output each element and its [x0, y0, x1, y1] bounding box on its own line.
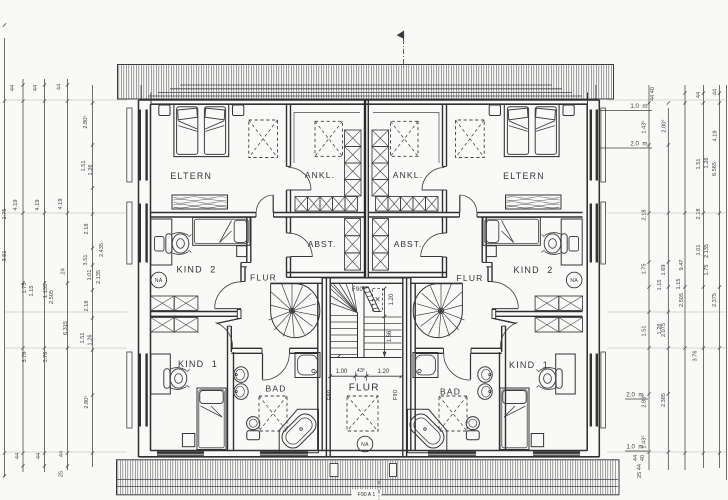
svg-text:1.26: 1.26 [704, 158, 710, 169]
svg-text:ELTERN: ELTERN [170, 171, 212, 181]
svg-text:3.51: 3.51 [83, 255, 89, 266]
svg-text:BAD: BAD [265, 384, 286, 394]
svg-text:1.51: 1.51 [696, 159, 702, 170]
svg-text:2.375: 2.375 [712, 293, 718, 307]
svg-text:44: 44 [696, 92, 702, 98]
svg-text:44: 44 [10, 85, 16, 91]
svg-text:25 44: 25 44 [637, 464, 643, 478]
svg-text:44: 44 [633, 455, 639, 461]
svg-text:4.19: 4.19 [35, 200, 41, 211]
svg-text:2.505: 2.505 [49, 290, 55, 304]
svg-text:2.075: 2.075 [661, 323, 667, 337]
svg-text:2.18: 2.18 [696, 209, 702, 220]
svg-text:2.80⁵: 2.80⁵ [83, 395, 90, 408]
svg-text:2.135: 2.135 [704, 244, 710, 258]
svg-text:F90 A 1: F90 A 1 [358, 492, 376, 498]
svg-text:2.0 m: 2.0 m [630, 141, 647, 148]
svg-text:FLUR: FLUR [250, 272, 277, 282]
svg-text:2.385: 2.385 [661, 393, 667, 407]
svg-text:BAD: BAD [440, 387, 461, 397]
svg-text:3.76: 3.76 [22, 352, 28, 363]
svg-text:6.315: 6.315 [63, 321, 69, 335]
svg-text:1.26: 1.26 [88, 335, 94, 346]
svg-text:43⁵: 43⁵ [357, 367, 365, 374]
svg-text:2.0 m: 2.0 m [626, 392, 643, 399]
svg-text:1.15: 1.15 [657, 280, 663, 291]
svg-text:1.0 m: 1.0 m [630, 103, 647, 110]
svg-text:1.56: 1.56 [387, 330, 393, 342]
svg-text:3.51: 3.51 [2, 251, 8, 262]
svg-text:KIND 2: KIND 2 [177, 265, 217, 275]
svg-text:FLUR: FLUR [349, 383, 380, 394]
svg-text:1.20: 1.20 [389, 293, 395, 305]
svg-text:ABST.: ABST. [394, 239, 423, 249]
svg-text:1.00: 1.00 [336, 369, 348, 375]
svg-text:1.75: 1.75 [2, 209, 8, 220]
svg-text:KIND 1: KIND 1 [509, 360, 549, 370]
svg-text:44 40: 44 40 [650, 87, 656, 101]
svg-text:1.75: 1.75 [704, 265, 710, 276]
svg-text:KIND 2: KIND 2 [514, 265, 554, 275]
svg-text:1.69: 1.69 [661, 265, 667, 276]
svg-text:25: 25 [59, 471, 65, 477]
svg-text:1.75: 1.75 [642, 264, 648, 275]
svg-text:44: 44 [33, 85, 39, 91]
svg-text:ANKL.: ANKL. [305, 170, 336, 180]
svg-text:2.18: 2.18 [642, 210, 648, 221]
svg-text:1.01: 1.01 [696, 245, 702, 256]
svg-text:3.76: 3.76 [693, 351, 699, 362]
svg-text:NA: NA [155, 278, 163, 284]
svg-text:1.43⁵: 1.43⁵ [641, 120, 648, 133]
svg-text:9.47: 9.47 [679, 260, 685, 271]
svg-text:1.15: 1.15 [29, 286, 35, 297]
svg-text:3.76: 3.76 [43, 352, 49, 363]
svg-text:1.51: 1.51 [81, 161, 87, 172]
svg-text:ELTERN: ELTERN [503, 171, 545, 181]
svg-text:NA: NA [570, 278, 578, 284]
svg-text:1.15: 1.15 [676, 279, 682, 290]
svg-text:1.0 m: 1.0 m [626, 444, 643, 451]
svg-text:1.01: 1.01 [87, 270, 93, 281]
svg-text:2.435: 2.435 [99, 243, 105, 257]
svg-text:1.51: 1.51 [80, 333, 86, 344]
svg-text:ANKL.: ANKL. [393, 170, 424, 180]
svg-text:.24: .24 [61, 268, 67, 276]
svg-text:1.75: 1.75 [22, 283, 28, 294]
svg-text:ABST.: ABST. [308, 239, 337, 249]
svg-text:4.19: 4.19 [13, 200, 19, 211]
svg-text:2.18: 2.18 [84, 301, 90, 312]
svg-text:F90: F90 [352, 287, 364, 293]
svg-text:F90: F90 [327, 390, 333, 400]
svg-text:2.505: 2.505 [679, 293, 685, 307]
svg-text:1.26: 1.26 [88, 165, 94, 176]
svg-text:NA: NA [361, 442, 369, 448]
svg-text:2.80⁵: 2.80⁵ [82, 115, 89, 128]
svg-text:F90: F90 [393, 390, 399, 400]
svg-text:40: 40 [640, 455, 646, 461]
svg-text:KIND 1: KIND 1 [178, 359, 218, 369]
svg-text:2.80⁵: 2.80⁵ [661, 119, 668, 132]
svg-text:FLUR: FLUR [457, 273, 484, 283]
svg-text:44: 44 [15, 453, 21, 459]
svg-text:44: 44 [36, 453, 42, 459]
svg-text:44: 44 [713, 89, 719, 95]
svg-text:1.20: 1.20 [378, 369, 390, 375]
svg-text:6.565: 6.565 [712, 162, 718, 176]
svg-text:4.19: 4.19 [713, 131, 719, 142]
svg-text:2.135: 2.135 [96, 270, 102, 284]
svg-text:44: 44 [57, 84, 63, 90]
svg-text:4.19: 4.19 [58, 199, 64, 210]
svg-text:1.51: 1.51 [642, 326, 648, 337]
svg-text:2.18: 2.18 [84, 224, 90, 235]
